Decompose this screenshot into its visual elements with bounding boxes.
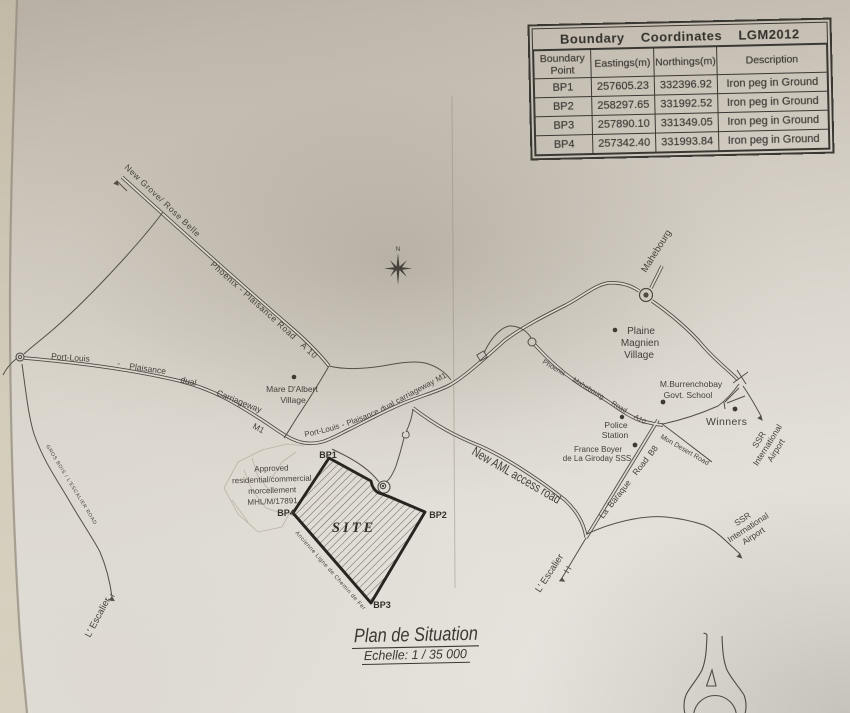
svg-text:Phoenix - Plaisance Road A 1: Phoenix - Plaisance Road A 10 <box>209 259 320 360</box>
svg-text:Winners: Winners <box>706 416 747 428</box>
svg-text:Approved: Approved <box>254 463 289 473</box>
svg-text:GROS BOIS / L'ESCALIER ROAD: GROS BOIS / L'ESCALIER ROAD <box>44 444 98 526</box>
svg-text:Station: Station <box>602 430 629 440</box>
svg-text:Phoenix Mahebourg Road A10: Phoenix Mahebourg Road A10 <box>541 359 647 426</box>
svg-text:BP2: BP2 <box>429 510 447 520</box>
svg-text:dual: dual <box>180 374 198 388</box>
svg-text:Police: Police <box>604 420 627 430</box>
svg-text:de La Giroday SSS: de La Giroday SSS <box>563 454 631 463</box>
svg-text:Echelle: 1 / 35 000: Echelle: 1 / 35 000 <box>364 646 468 663</box>
svg-text:Mon Desert Road: Mon Desert Road <box>659 434 710 468</box>
svg-text:L' Escalier: L' Escalier <box>533 552 566 594</box>
svg-text:N: N <box>396 246 401 253</box>
svg-text:-: - <box>117 358 121 368</box>
svg-text:Mare D'Albert: Mare D'Albert <box>266 384 318 394</box>
svg-text:Village: Village <box>624 350 654 361</box>
svg-text:Carriageway: Carriageway <box>215 388 264 415</box>
svg-text:morcellement: morcellement <box>248 485 297 496</box>
svg-text:M.Burrenchobay: M.Burrenchobay <box>660 379 723 389</box>
svg-text:Plan de Situation: Plan de Situation <box>354 623 478 648</box>
svg-text:Port-Louis - Plaisance dual ca: Port-Louis - Plaisance dual carriageway … <box>304 371 448 439</box>
svg-text:New Grove/ Rose Belle: New Grove/ Rose Belle <box>123 162 203 239</box>
svg-text:residential/commercial: residential/commercial <box>232 474 312 486</box>
svg-text:BP4: BP4 <box>277 508 295 518</box>
svg-text:Govt. School: Govt. School <box>664 390 713 400</box>
svg-text:Mahebourg: Mahebourg <box>639 228 674 275</box>
svg-text:Magnien: Magnien <box>621 338 659 349</box>
svg-text:BP3: BP3 <box>373 600 391 610</box>
svg-text:SITE: SITE <box>332 520 376 536</box>
svg-text:MHL/M/17891: MHL/M/17891 <box>247 496 298 507</box>
svg-text:New AML access road: New AML access road <box>470 444 564 507</box>
svg-text:L' Escalier: L' Escalier <box>83 596 113 640</box>
svg-text:BP1: BP1 <box>319 450 337 460</box>
svg-text:France Boyer: France Boyer <box>574 445 622 454</box>
svg-text:Village: Village <box>280 395 306 405</box>
svg-text:Plaine: Plaine <box>627 326 655 337</box>
